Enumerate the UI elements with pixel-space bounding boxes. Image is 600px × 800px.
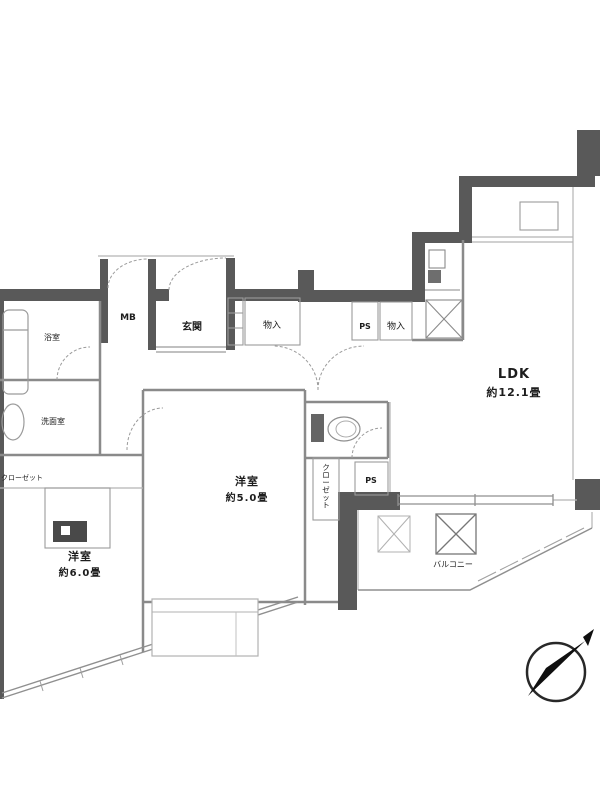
mb-label: MB <box>120 313 136 323</box>
closet-vertical-label: クローゼット <box>322 463 330 510</box>
entrance-step-lines <box>156 347 226 352</box>
floorplan-scan: MB 玄関 物入 PS 物入 LDK 約12.1畳 洋室 約5.0畳 洋室 約6… <box>0 0 600 800</box>
balcony-step-hatch <box>478 528 584 581</box>
bedroom5-name: 洋室 <box>235 474 259 488</box>
washbasin-icon <box>2 404 24 440</box>
floorplan-page: MB 玄関 物入 PS 物入 LDK 約12.1畳 洋室 約5.0畳 洋室 約6… <box>0 0 600 800</box>
balcony-hatch-left <box>378 516 410 552</box>
mid-ps-label: PS <box>365 476 377 485</box>
kitchen-fixtures <box>425 250 460 290</box>
ldk-size: 約12.1畳 <box>486 385 541 399</box>
evacuation-hatch-icon <box>436 514 476 554</box>
toilet-icon <box>311 414 360 442</box>
ldk-name: LDK <box>498 367 530 382</box>
bedroom6-size: 約6.0畳 <box>59 566 102 579</box>
kitchen-storage-label: 物入 <box>387 320 405 332</box>
utility-box <box>45 488 110 548</box>
bathtub-icon <box>3 310 28 394</box>
closet-left-label: クローゼット <box>1 473 43 482</box>
balcony-railing <box>358 528 592 590</box>
refrigerator-space <box>426 300 462 338</box>
bedroom6-name: 洋室 <box>68 549 92 563</box>
compass-north-icon <box>527 629 594 701</box>
floorplan-drawing: MB 玄関 物入 PS 物入 LDK 約12.1畳 洋室 約5.0畳 洋室 約6… <box>0 0 600 800</box>
entrance-label: 玄関 <box>182 320 202 333</box>
lower-structure-outline <box>152 599 258 656</box>
entry-storage-label: 物入 <box>263 319 281 331</box>
washroom-label: 洗面室 <box>41 416 65 426</box>
upper-ps-box <box>352 302 412 340</box>
outer-walls <box>0 130 600 699</box>
bedroom5-size: 約5.0畳 <box>226 491 269 504</box>
window-sashes <box>398 494 553 506</box>
balcony-label: バルコニー <box>433 560 473 569</box>
bath-label: 浴室 <box>44 332 60 342</box>
ldk-counter <box>520 202 558 230</box>
upper-ps-label: PS <box>359 322 371 331</box>
